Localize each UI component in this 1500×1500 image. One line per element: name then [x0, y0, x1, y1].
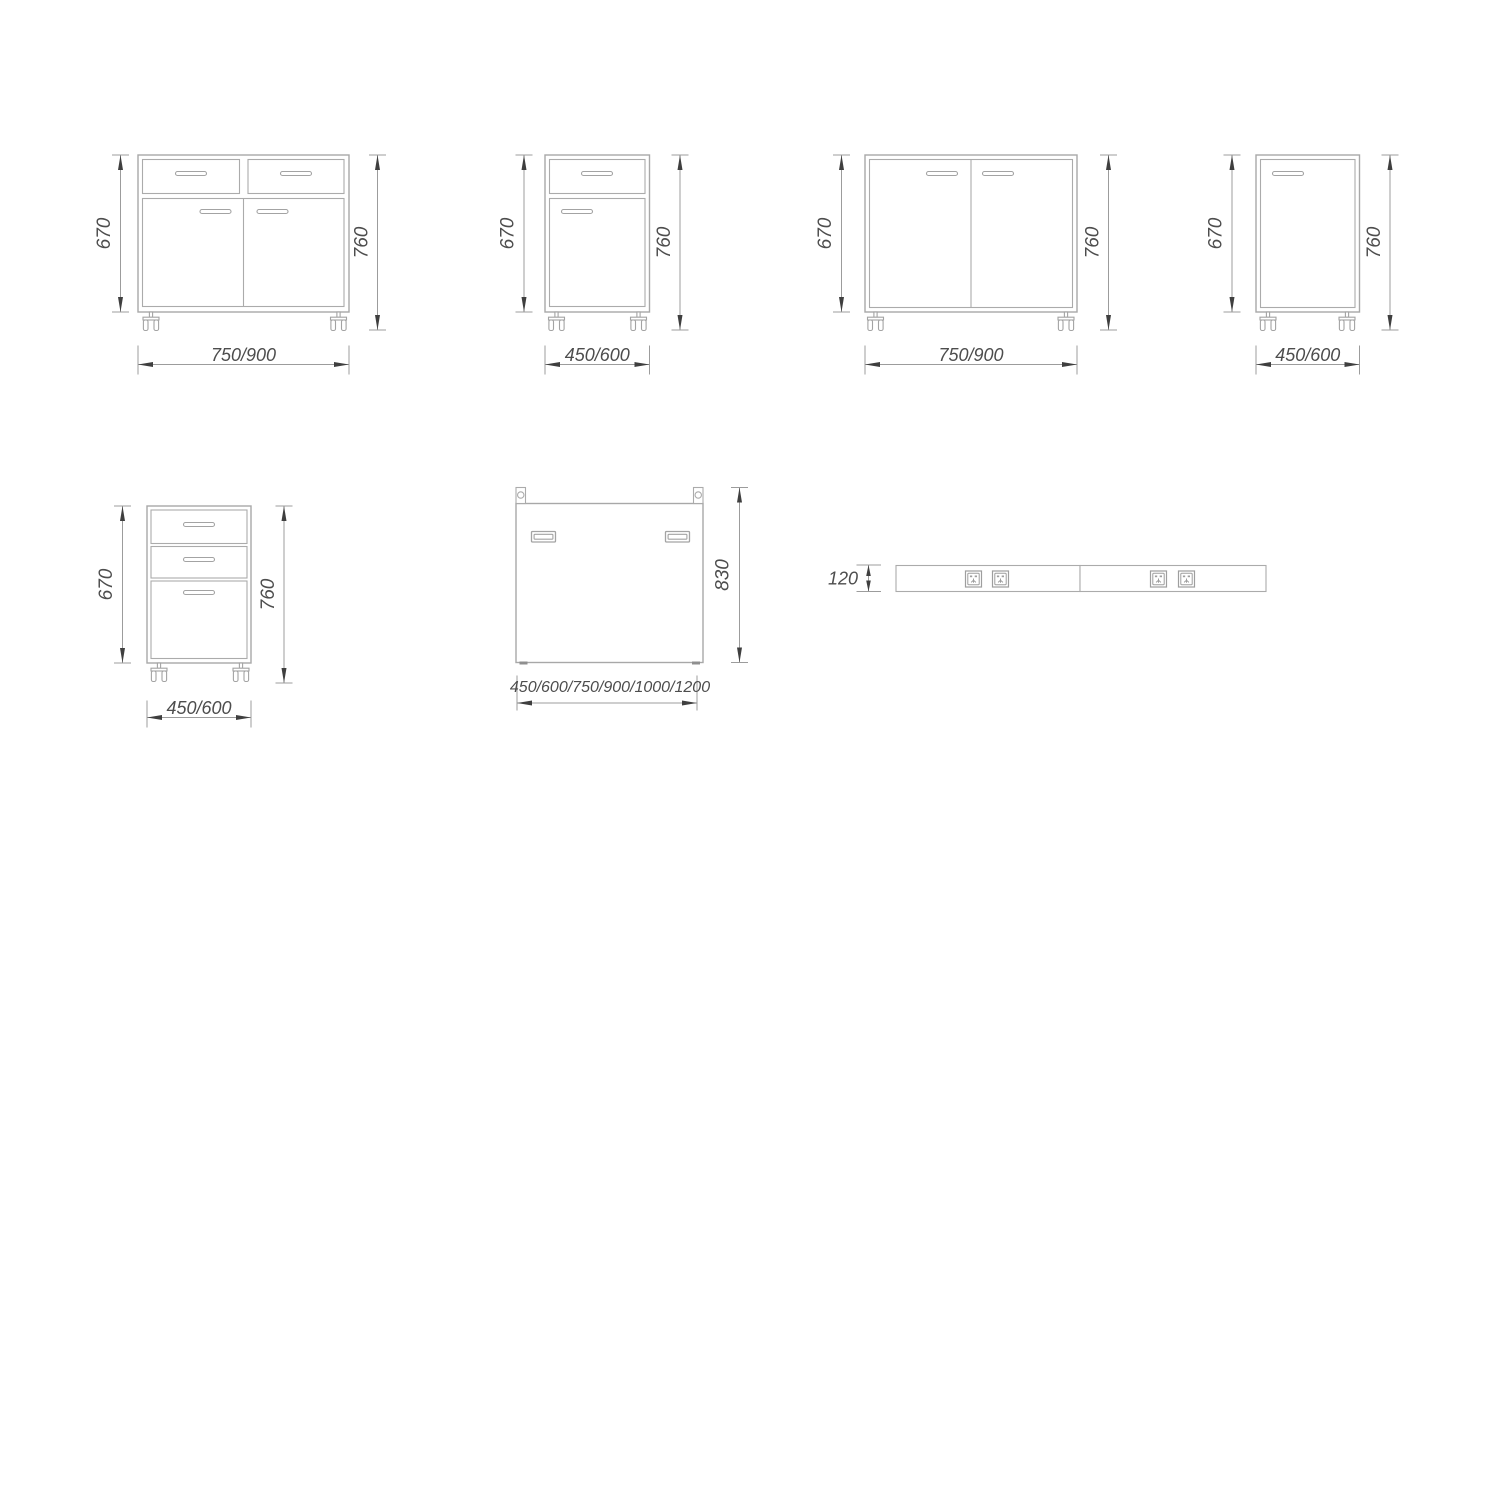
power-socket-icon	[966, 571, 982, 587]
panel-body	[516, 504, 703, 663]
dim-label-height: 120	[828, 569, 858, 589]
door-handle	[983, 172, 1014, 176]
drawer-front	[151, 547, 247, 579]
dim-body-height: 670	[94, 155, 129, 312]
dim-width: 750/900	[865, 345, 1077, 375]
caster-wheel	[331, 312, 347, 331]
caster-wheel	[549, 312, 565, 331]
door-handle	[1273, 172, 1304, 176]
dim-width: 450/600	[545, 345, 650, 375]
dim-label-width: 450/600/750/900/1000/1200	[510, 679, 710, 696]
figure-cabinet-single-door: 670 760 450/600	[1206, 155, 1399, 375]
figure-mobile-panel: 830 450/600/750/900/1000/1200	[510, 488, 748, 711]
figure-cabinet-double-door: 670 760 750/900	[815, 155, 1117, 375]
dim-label-overall-height: 760	[352, 226, 373, 258]
figure-cabinet-two-drawers-two-doors: 670 760 750/900	[94, 155, 386, 375]
dim-body-height: 670	[815, 155, 850, 312]
drawer-handle	[184, 558, 215, 562]
door-handle	[562, 210, 593, 214]
dim-width: 450/600/750/900/1000/1200	[510, 676, 710, 711]
dim-overall-height: 760	[258, 506, 293, 683]
panel-foot	[520, 662, 528, 665]
dim-overall-height: 760	[1083, 155, 1118, 330]
door-panel	[1261, 160, 1356, 308]
dim-label-overall-height: 760	[1083, 226, 1104, 258]
strip-segment	[1080, 566, 1266, 592]
power-socket-icon	[993, 571, 1009, 587]
dim-height: 120	[828, 565, 881, 592]
dim-label-width: 450/600	[565, 345, 630, 365]
drawer-handle	[184, 591, 215, 595]
dim-body-height: 670	[498, 155, 533, 312]
drawer-handle	[176, 172, 207, 176]
slot-handle	[666, 532, 690, 543]
drawer-front	[248, 160, 344, 194]
caster-wheel	[1339, 312, 1355, 331]
dim-label-height: 830	[713, 559, 734, 591]
drawer-front	[550, 160, 646, 194]
dim-label-width: 450/600	[166, 698, 231, 718]
caster-wheel	[143, 312, 159, 331]
caster-wheel	[1260, 312, 1276, 331]
dim-label-width: 750/900	[938, 345, 1003, 365]
dim-label-overall-height: 760	[1364, 226, 1385, 258]
dim-label-width: 450/600	[1275, 345, 1340, 365]
dim-label-body-height: 670	[815, 217, 836, 249]
dim-width: 450/600	[147, 698, 251, 728]
figure-power-strip: 120	[828, 565, 1266, 592]
door-handle	[200, 210, 231, 214]
dim-overall-height: 760	[654, 155, 689, 330]
dim-body-height: 670	[96, 506, 131, 663]
power-socket-icon	[1151, 571, 1167, 587]
dim-label-body-height: 670	[498, 217, 519, 249]
drawer-front	[143, 160, 240, 194]
drawer-handle	[184, 523, 215, 527]
panel-foot	[692, 662, 700, 665]
figure-cabinet-three-drawers: 670 760 450/600	[96, 506, 293, 728]
door-panel	[550, 199, 646, 307]
strip-segment	[896, 566, 1080, 592]
drawer-handle	[281, 172, 312, 176]
dim-width: 750/900	[138, 345, 349, 375]
dim-label-body-height: 670	[94, 217, 115, 249]
caster-wheel	[1058, 312, 1074, 331]
cabinet-dimension-drawing: 670 760 750/900 670	[0, 0, 1500, 1500]
door-handle	[257, 210, 288, 214]
caster-wheel	[631, 312, 647, 331]
dim-label-overall-height: 760	[654, 226, 675, 258]
dim-height: 830	[713, 488, 749, 663]
dim-overall-height: 760	[1364, 155, 1399, 330]
dim-label-overall-height: 760	[258, 578, 279, 610]
dim-width: 450/600	[1256, 345, 1360, 375]
caster-wheel	[233, 663, 249, 682]
door-handle	[927, 172, 958, 176]
power-socket-icon	[1179, 571, 1195, 587]
caster-wheel	[151, 663, 167, 682]
figure-cabinet-single-drawer-single-door: 670 760 450/600	[498, 155, 689, 375]
slot-handle	[532, 532, 556, 543]
dim-label-body-height: 670	[96, 568, 117, 600]
technical-drawing-sheet: 670 760 750/900 670	[0, 0, 1500, 1500]
caster-wheel	[868, 312, 884, 331]
dim-body-height: 670	[1206, 155, 1241, 312]
dim-overall-height: 760	[352, 155, 387, 330]
dim-label-body-height: 670	[1206, 217, 1227, 249]
drawer-handle	[582, 172, 613, 176]
dim-label-width: 750/900	[211, 345, 276, 365]
